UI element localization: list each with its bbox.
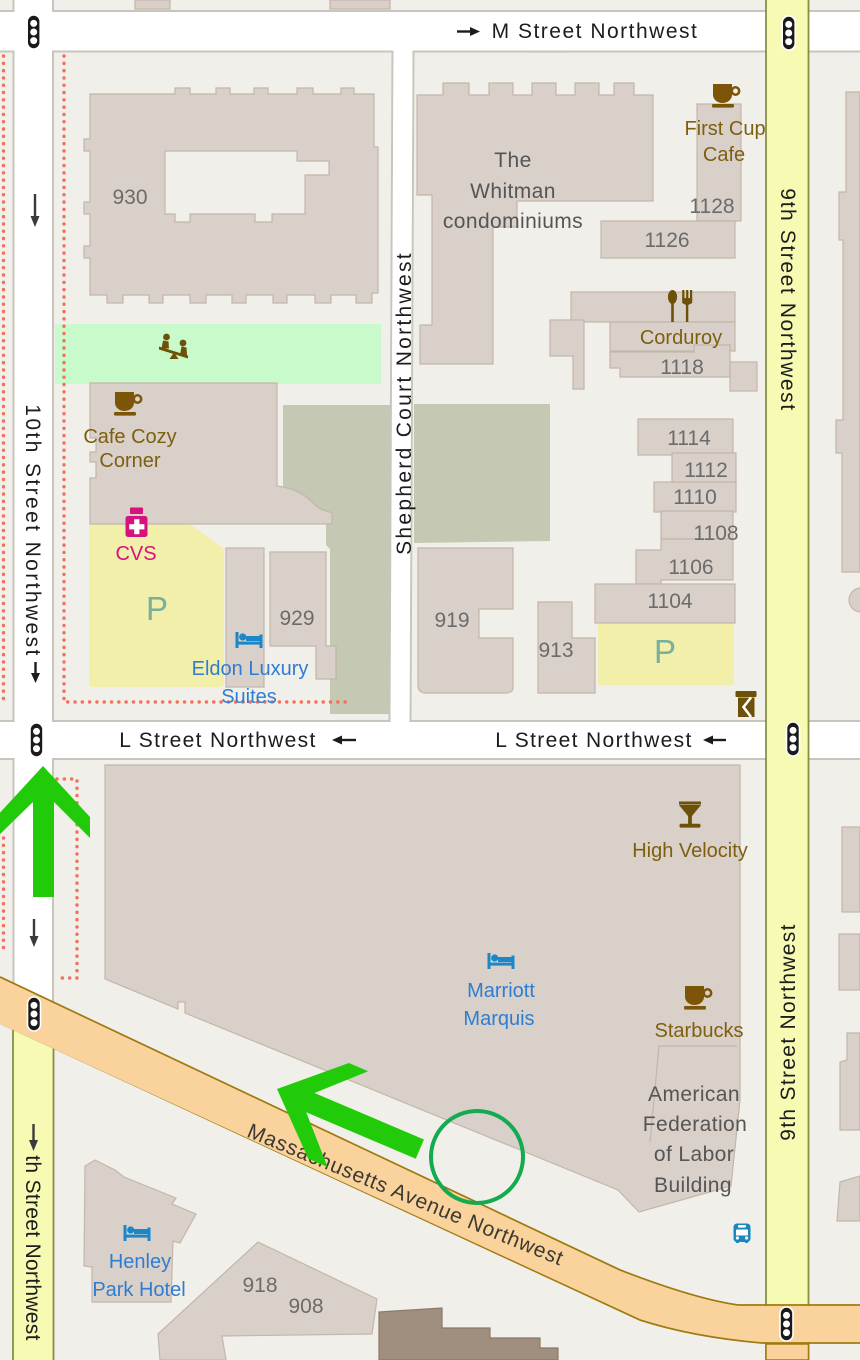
svg-text:CVS: CVS <box>115 543 156 565</box>
svg-text:High Velocity: High Velocity <box>632 840 748 862</box>
svg-text:th Street Northwest: th Street Northwest <box>21 1155 44 1340</box>
svg-text:Shepherd Court Northwest: Shepherd Court Northwest <box>393 251 416 555</box>
svg-text:918: 918 <box>242 1274 277 1297</box>
svg-text:10th Street Northwest: 10th Street Northwest <box>21 404 44 658</box>
svg-text:condominiums: condominiums <box>443 210 583 233</box>
svg-text:1104: 1104 <box>647 590 692 613</box>
svg-text:919: 919 <box>434 609 469 632</box>
svg-text:Marriott: Marriott <box>467 980 535 1002</box>
svg-text:M Street Northwest: M Street Northwest <box>492 20 699 43</box>
svg-text:1112: 1112 <box>684 459 728 482</box>
svg-text:1128: 1128 <box>689 195 734 218</box>
svg-text:Cafe Cozy: Cafe Cozy <box>83 426 176 448</box>
svg-text:The: The <box>494 149 531 172</box>
svg-text:Marquis: Marquis <box>463 1008 534 1030</box>
svg-text:1110: 1110 <box>673 486 717 509</box>
svg-text:Starbucks: Starbucks <box>655 1020 744 1042</box>
svg-text:First Cup: First Cup <box>684 118 765 140</box>
svg-text:Corduroy: Corduroy <box>640 327 722 349</box>
svg-text:Building: Building <box>654 1174 732 1197</box>
svg-text:9th Street Northwest: 9th Street Northwest <box>777 923 800 1140</box>
svg-text:930: 930 <box>112 186 147 209</box>
svg-text:913: 913 <box>538 639 573 662</box>
svg-text:908: 908 <box>288 1295 323 1318</box>
svg-text:P: P <box>654 633 676 670</box>
svg-text:Henley: Henley <box>109 1251 171 1273</box>
svg-text:1126: 1126 <box>644 229 689 252</box>
svg-text:Federation: Federation <box>643 1113 747 1136</box>
svg-text:Suites: Suites <box>221 686 277 708</box>
svg-text:American: American <box>648 1083 740 1106</box>
svg-text:Cafe: Cafe <box>703 144 745 166</box>
svg-text:Park Hotel: Park Hotel <box>92 1279 185 1301</box>
svg-text:1118: 1118 <box>660 356 704 379</box>
svg-text:1108: 1108 <box>693 522 738 545</box>
svg-text:1106: 1106 <box>668 556 713 579</box>
svg-text:Whitman: Whitman <box>470 180 556 203</box>
svg-text:of Labor: of Labor <box>654 1143 734 1166</box>
svg-text:L Street Northwest: L Street Northwest <box>495 729 692 752</box>
svg-text:P: P <box>146 590 168 627</box>
svg-text:L Street Northwest: L Street Northwest <box>119 729 316 752</box>
svg-text:1114: 1114 <box>667 427 711 450</box>
svg-text:Eldon Luxury: Eldon Luxury <box>192 658 309 680</box>
svg-text:929: 929 <box>279 607 314 630</box>
svg-text:9th Street Northwest: 9th Street Northwest <box>776 188 799 411</box>
svg-text:Corner: Corner <box>99 450 160 472</box>
